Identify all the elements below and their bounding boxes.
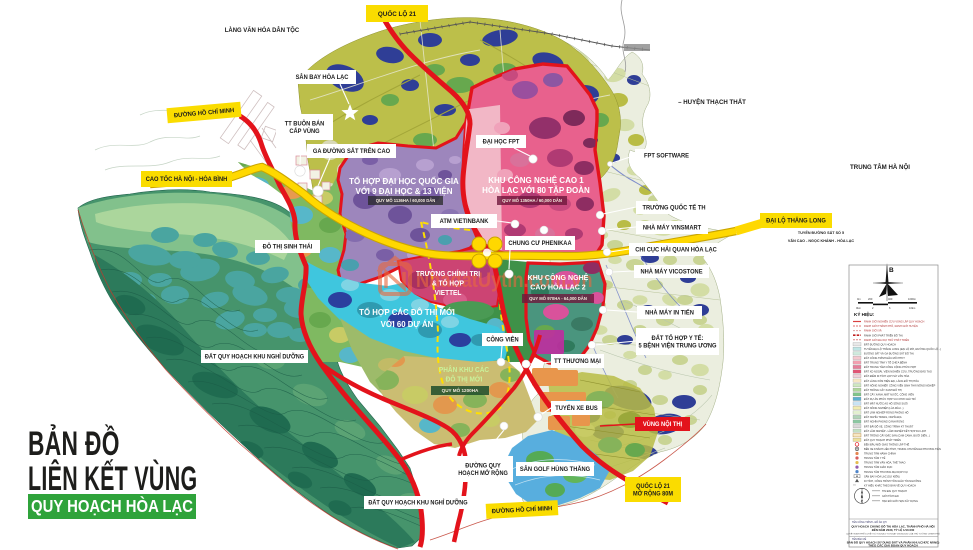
svg-text:CAO HÒA LẠC 2: CAO HÒA LẠC 2	[530, 282, 585, 291]
svg-text:QUY MÔ 1136HA / 60,000 DÂN: QUY MÔ 1136HA / 60,000 DÂN	[376, 198, 436, 203]
svg-text:QUỐC LỘ 21: QUỐC LỘ 21	[636, 482, 670, 490]
svg-text:HÒA LẠC VỚI 80 TẬP ĐOÀN: HÒA LẠC VỚI 80 TẬP ĐOÀN	[482, 184, 590, 195]
svg-text:TRUNG TÂM HÀNH CHÍNH: TRUNG TÂM HÀNH CHÍNH	[864, 452, 896, 456]
svg-text:SÂN BAY HÒA LẠC: SÂN BAY HÒA LẠC	[296, 73, 349, 81]
svg-text:ĐẾN NĂM 2030, TỶ LỆ 1/10.000: ĐẾN NĂM 2030, TỶ LỆ 1/10.000	[872, 527, 915, 532]
svg-text:VĂN CAO - NGỌC KHÁNH - HÒA LẠC: VĂN CAO - NGỌC KHÁNH - HÒA LẠC	[788, 238, 854, 243]
svg-text:MỞ RỘNG 80M: MỞ RỘNG 80M	[633, 489, 673, 497]
svg-text:HOẠCH MỞ RỘNG: HOẠCH MỞ RỘNG	[458, 469, 508, 477]
svg-text:TT BUÔN BÁN: TT BUÔN BÁN	[285, 119, 325, 127]
svg-text:NHÀ MÁY VINSMART: NHÀ MÁY VINSMART	[643, 225, 702, 232]
svg-text:QUY MÔ 1200HA: QUY MÔ 1200HA	[442, 386, 479, 393]
svg-text:PHÂN KHU CÁC: PHÂN KHU CÁC	[439, 365, 489, 374]
svg-text:CAO TỐC HÀ NỘI - HÒA BÌNH: CAO TỐC HÀ NỘI - HÒA BÌNH	[146, 175, 228, 183]
svg-text:TUYẾN XE BUS: TUYẾN XE BUS	[555, 405, 598, 412]
svg-text:THEO CÁC GIAI ĐOẠN QUY HOẠCH: THEO CÁC GIAI ĐOẠN QUY HOẠCH	[868, 543, 918, 548]
svg-text:CHUNG CƯ PHENIKAA: CHUNG CƯ PHENIKAA	[508, 241, 572, 247]
svg-text:ĐẤT TỔ HỢP Y TẾ:: ĐẤT TỔ HỢP Y TẾ:	[652, 335, 704, 342]
svg-text:TRUNG TÂM GIÁO DỤC: TRUNG TÂM GIÁO DỤC	[864, 465, 893, 469]
svg-text:ĐẤT QUY HOẠCH KHU NGHỈ DƯỠNG: ĐẤT QUY HOẠCH KHU NGHỈ DƯỠNG	[368, 500, 468, 507]
svg-text:TIM ĐAI QUY HOẠCH: TIM ĐAI QUY HOẠCH	[882, 490, 907, 493]
svg-text:CHI CỤC HẢI QUAN HÒA LẠC: CHI CỤC HẢI QUAN HÒA LẠC	[635, 245, 717, 253]
svg-text:TRUNG TÂM THƯƠNG MẠI DỊCH VỤ: TRUNG TÂM THƯƠNG MẠI DỊCH VỤ	[864, 470, 908, 474]
svg-text:& TỔ HỢP: & TỔ HỢP	[432, 278, 464, 287]
svg-text:0m: 0m	[857, 297, 861, 301]
svg-text:TRƯỜNG QUỐC TẾ TH: TRƯỜNG QUỐC TẾ TH	[642, 203, 705, 211]
svg-text:ĐÔ THỊ SINH THÁI: ĐÔ THỊ SINH THÁI	[263, 242, 313, 250]
svg-text:QUY MÔ 1350HA / 60,000 DÂN: QUY MÔ 1350HA / 60,000 DÂN	[502, 198, 562, 203]
svg-text:5 BỆNH VIỆN TRUNG ƯƠNG: 5 BỆNH VIỆN TRUNG ƯƠNG	[638, 341, 716, 349]
svg-text:TRUNG TÂM HÀ NỘI: TRUNG TÂM HÀ NỘI	[850, 162, 910, 171]
svg-text:0km: 0km	[856, 306, 861, 310]
svg-text:ĐƯỜNG QUY: ĐƯỜNG QUY	[465, 461, 500, 469]
svg-text:QUY HOẠCH HÒA LẠC: QUY HOẠCH HÒA LẠC	[31, 496, 193, 516]
svg-text:KHU CÔNG NGHỆ CAO 1: KHU CÔNG NGHỆ CAO 1	[488, 174, 584, 185]
svg-text:ĐẤT QUY HOẠCH KHU NGHỈ DƯỠNG: ĐẤT QUY HOẠCH KHU NGHỈ DƯỠNG	[205, 354, 305, 361]
svg-text:ĐÔ THỊ MỚI: ĐÔ THỊ MỚI	[446, 374, 483, 383]
svg-text:GA ĐƯỜNG SẮT TRÊN CAO: GA ĐƯỜNG SẮT TRÊN CAO	[313, 147, 391, 155]
svg-text:LÀNG VĂN HÓA DÂN TỘC: LÀNG VĂN HÓA DÂN TỘC	[225, 26, 300, 34]
svg-text:KÝ HIỆU:: KÝ HIỆU:	[854, 310, 875, 317]
svg-text:VÙNG NỘI THỊ: VÙNG NỘI THỊ	[643, 420, 683, 428]
svg-text:TT THƯƠNG MẠI: TT THƯƠNG MẠI	[554, 359, 601, 365]
svg-text:TÊN CÔNG TRÌNH - ĐỒ ÁN QH: TÊN CÔNG TRÌNH - ĐỒ ÁN QH	[852, 521, 887, 524]
svg-text:BẢN ĐỒ: BẢN ĐỒ	[28, 423, 120, 463]
svg-text:SÂN GOLF HÙNG THẮNG: SÂN GOLF HÙNG THẮNG	[520, 465, 591, 473]
svg-text:TỔ HỢP ĐẠI HỌC QUỐC GIA: TỔ HỢP ĐẠI HỌC QUỐC GIA	[349, 175, 459, 186]
svg-text:ĐẠI LỘ THĂNG LONG: ĐẠI LỘ THĂNG LONG	[766, 216, 826, 224]
svg-text:LIÊN KẾT VÙNG: LIÊN KẾT VÙNG	[28, 460, 197, 498]
svg-text:200: 200	[868, 297, 873, 301]
svg-text:TRƯỜNG CHÍNH TRỊ: TRƯỜNG CHÍNH TRỊ	[416, 269, 480, 278]
svg-text:1000m: 1000m	[908, 297, 916, 301]
svg-text:10km: 10km	[909, 306, 915, 310]
svg-text:CÔNG VIÊN: CÔNG VIÊN	[486, 335, 518, 343]
svg-text:FPT SOFTWARE: FPT SOFTWARE	[644, 154, 689, 160]
svg-text:400: 400	[888, 297, 893, 301]
svg-text:VỚI 9 ĐẠI HỌC & 13 VIỆN: VỚI 9 ĐẠI HỌC & 13 VIỆN	[356, 185, 453, 196]
svg-text:ATM VIETINBANK: ATM VIETINBANK	[440, 219, 489, 225]
svg-text:HẠN ĐỎ GIỚI HẠN XÂY DỰNG: HẠN ĐỎ GIỚI HẠN XÂY DỰNG	[882, 500, 918, 503]
svg-text:CẤP VÙNG: CẤP VÙNG	[289, 128, 320, 135]
svg-text:KHU CÔNG NGHỆ: KHU CÔNG NGHỆ	[528, 273, 589, 282]
svg-text:TỔ HỢP CÁC ĐÔ THỊ MỚI: TỔ HỢP CÁC ĐÔ THỊ MỚI	[359, 308, 455, 317]
svg-text:ĐẠI HỌC FPT: ĐẠI HỌC FPT	[483, 140, 520, 146]
svg-text:QUY MÔ 970HA - 64,000 DÂN: QUY MÔ 970HA - 64,000 DÂN	[529, 296, 587, 301]
svg-text:GIỚI TÍCH ĐAI: GIỚI TÍCH ĐAI	[882, 495, 899, 498]
svg-text:TUYẾN ĐƯỜNG SẮT SỐ 5: TUYẾN ĐƯỜNG SẮT SỐ 5	[798, 230, 845, 235]
svg-text:***: ***	[853, 484, 856, 487]
svg-text:B: B	[889, 267, 894, 274]
svg-text:VỚI 60 DỰ ÁN: VỚI 60 DỰ ÁN	[381, 320, 434, 329]
svg-text:NHÀ MÁY VICOSTONE: NHÀ MÁY VICOSTONE	[640, 269, 702, 276]
svg-text:NHÀ MÁY IN TIẾN: NHÀ MÁY IN TIẾN	[645, 310, 694, 317]
svg-text:VIETTEL: VIETTEL	[435, 290, 462, 297]
